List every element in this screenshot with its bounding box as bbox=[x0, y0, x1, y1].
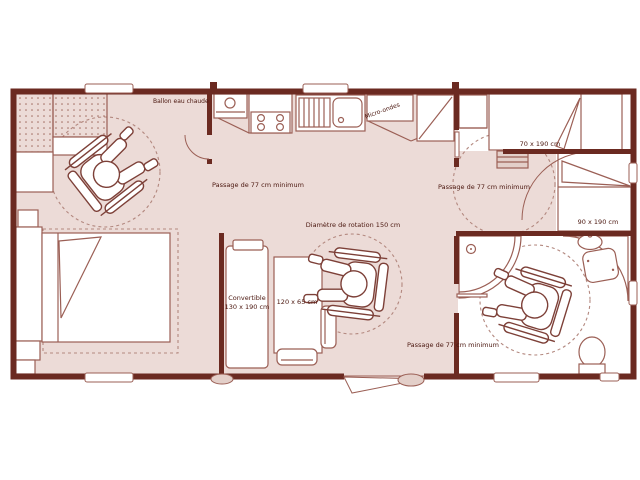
label-table-size: 120 x 65 cm bbox=[275, 299, 319, 307]
floorplan-drawing bbox=[0, 0, 640, 480]
sliding-door bbox=[455, 132, 459, 157]
label-convertible: Convertible bbox=[223, 295, 271, 303]
nightstand bbox=[13, 341, 40, 360]
window bbox=[303, 84, 348, 93]
chair bbox=[277, 349, 317, 365]
window bbox=[629, 281, 637, 305]
window bbox=[600, 373, 619, 381]
label-bed-90: 90 x 190 cm bbox=[570, 219, 626, 227]
headboard bbox=[13, 227, 42, 341]
label-bed-70: 70 x 190 cm bbox=[512, 141, 568, 149]
label-water-heater: Ballon eau chaude bbox=[153, 98, 207, 105]
hob-icon bbox=[249, 94, 292, 133]
toilet-icon bbox=[579, 337, 605, 374]
nightstand bbox=[18, 210, 38, 227]
label-rotation-diameter: Diamètre de rotation 150 cm bbox=[303, 222, 403, 230]
entry-step bbox=[398, 374, 424, 386]
wall-nub bbox=[452, 82, 459, 92]
label-passage-2: Passage de 77 cm minimum bbox=[436, 184, 532, 192]
wall-nub bbox=[210, 82, 217, 92]
label-passage-1: Passage de 77 cm minimum bbox=[210, 182, 306, 190]
window bbox=[494, 373, 539, 382]
window bbox=[85, 373, 133, 382]
label-convertible-size: 130 x 190 cm bbox=[223, 304, 271, 312]
window bbox=[85, 84, 133, 93]
bathroom-door-leaf bbox=[457, 294, 487, 297]
label-passage-3: Passage de 77 cm minimum bbox=[405, 342, 501, 350]
floorplan: Ballon eau chaude Micro-ondes Passage de… bbox=[0, 0, 640, 480]
kitchen-sink-icon bbox=[296, 95, 365, 131]
window bbox=[629, 163, 637, 183]
entry-step bbox=[211, 374, 233, 384]
fridge-icon bbox=[417, 95, 454, 141]
mirror-cabinet-icon bbox=[582, 247, 620, 283]
closet bbox=[459, 95, 487, 128]
